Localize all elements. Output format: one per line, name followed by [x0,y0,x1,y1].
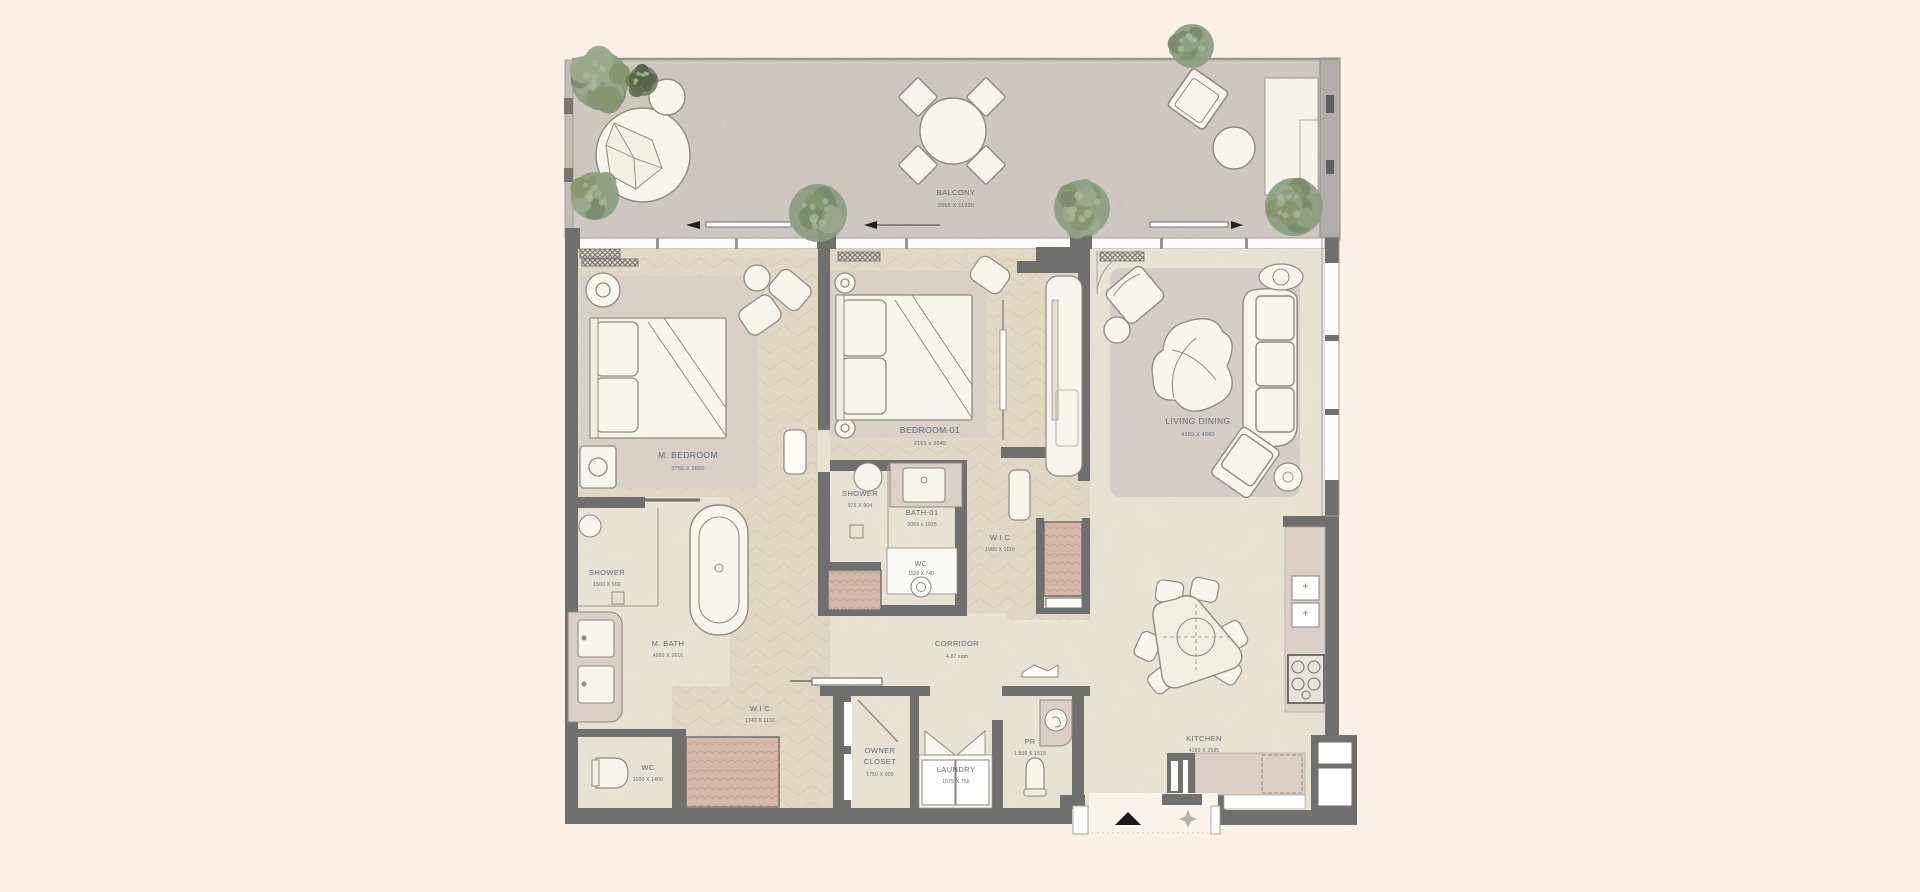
svg-text:1575 X 750: 1575 X 750 [942,779,970,785]
svg-text:LIVING DINING: LIVING DINING [1165,416,1230,426]
svg-text:KITCHEN: KITCHEN [1186,734,1222,743]
svg-text:4.87 sqm: 4.87 sqm [946,654,968,660]
svg-text:4155 X 4060: 4155 X 4060 [1181,432,1214,438]
svg-text:BEDROOM-01: BEDROOM-01 [900,425,960,435]
svg-text:1740 X 1130: 1740 X 1130 [745,718,775,724]
svg-text:BATH-01: BATH-01 [905,508,938,517]
svg-text:2965 X 11200: 2965 X 11200 [938,203,974,209]
svg-text:1500 X 900: 1500 X 900 [593,582,621,588]
svg-text:1750 X 900: 1750 X 900 [866,772,894,778]
svg-text:WC: WC [915,561,927,568]
svg-text:3765 X 3650: 3765 X 3650 [671,466,704,472]
svg-text:1980 X 1110: 1980 X 1110 [985,547,1015,553]
svg-text:WC: WC [641,763,654,772]
svg-text:2165 x 3045: 2165 x 3045 [914,441,946,447]
svg-text:CORRIDOR: CORRIDOR [935,639,979,648]
svg-text:PR: PR [1024,737,1035,746]
svg-text:LAUNDRY: LAUNDRY [937,765,976,774]
svg-text:3059 x 1925: 3059 x 1925 [907,522,937,528]
svg-text:1100 X 1400: 1100 X 1400 [633,777,663,783]
svg-text:W.I.C: W.I.C [750,704,771,713]
svg-text:1.500 X 1515: 1.500 X 1515 [1014,751,1046,757]
svg-text:SHOWER: SHOWER [842,489,878,498]
svg-text:M. BEDROOM: M. BEDROOM [658,450,718,460]
svg-text:SHOWER: SHOWER [589,568,625,577]
svg-text:CLOSET: CLOSET [864,757,896,766]
svg-text:W.I.C: W.I.C [990,533,1011,542]
svg-text:M. BATH: M. BATH [652,639,685,648]
svg-text:975 X 904: 975 X 904 [848,503,873,509]
svg-text:BALCONY: BALCONY [937,188,976,197]
svg-text:OWNER: OWNER [865,746,896,755]
svg-text:4150 X 3585: 4150 X 3585 [1189,748,1220,754]
svg-text:4950 X 2616: 4950 X 2616 [653,653,684,659]
svg-text:1520 X 740: 1520 X 740 [908,571,934,577]
